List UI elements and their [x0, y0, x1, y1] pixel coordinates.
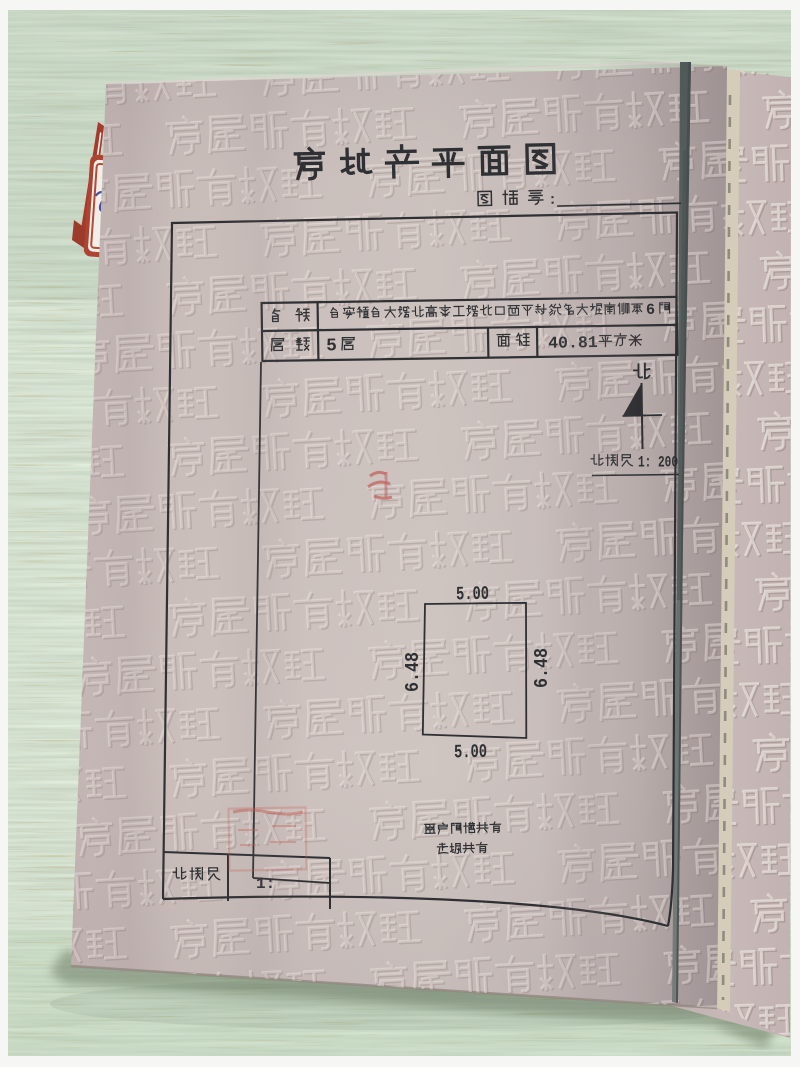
- svg-text:5.00: 5.00: [456, 583, 489, 606]
- svg-text:5: 5: [326, 336, 337, 356]
- svg-text:6: 6: [646, 301, 655, 319]
- svg-text:6.48: 6.48: [402, 652, 424, 692]
- svg-text:1: 200: 1: 200: [638, 454, 678, 472]
- svg-text:5.00: 5.00: [454, 741, 487, 764]
